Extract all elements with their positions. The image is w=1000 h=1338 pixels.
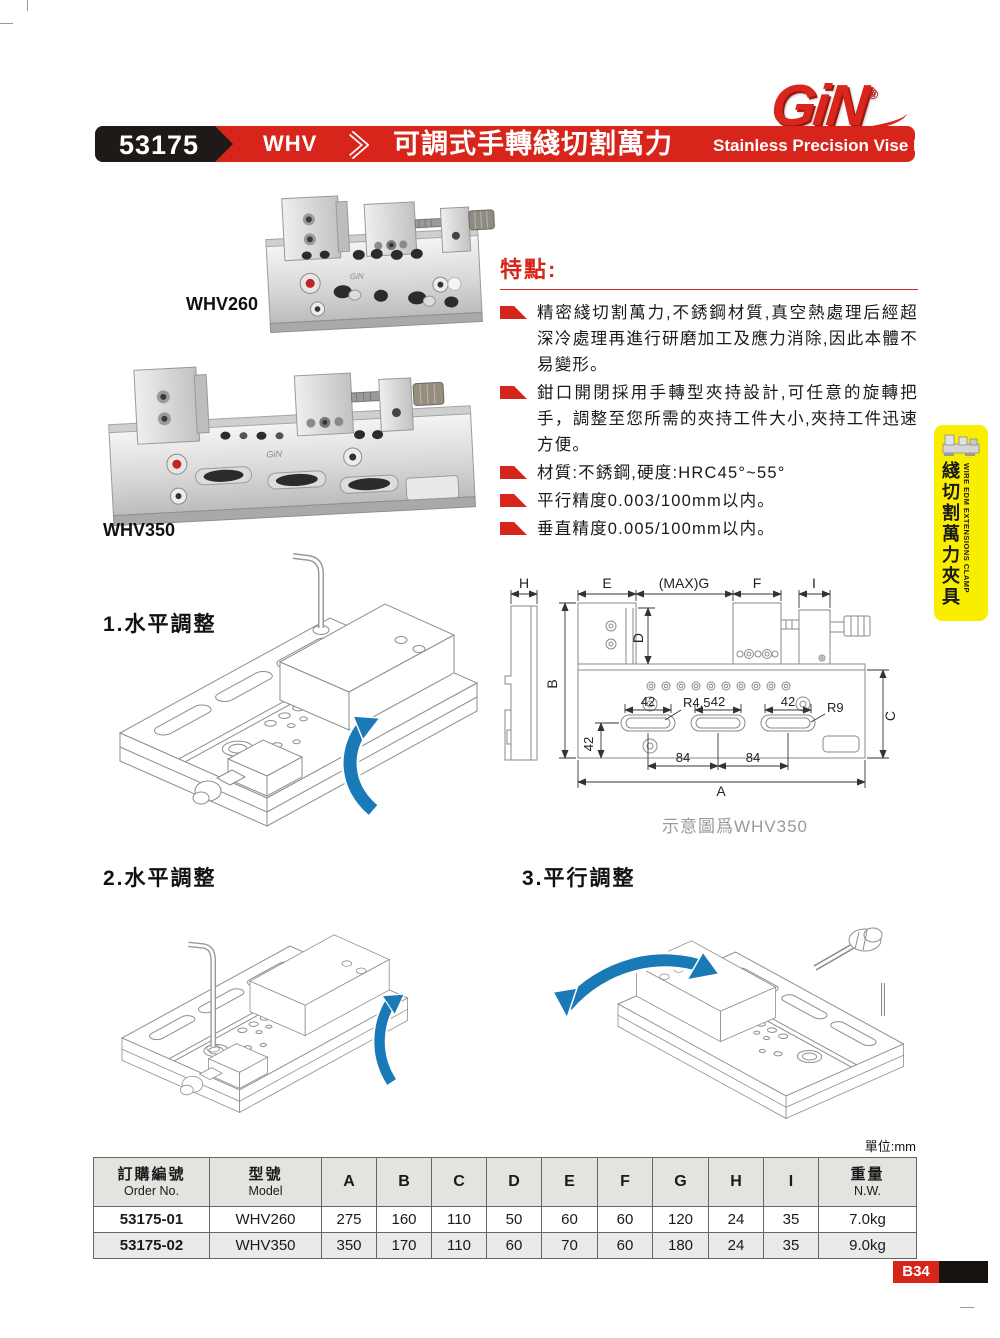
col-order-en: Order No. (94, 1184, 209, 1199)
dim-label-h: H (519, 575, 529, 591)
cell-d: 50 (487, 1207, 542, 1233)
feature-item: 平行精度0.003/100mm以内。 (500, 488, 918, 514)
feature-text: 精密綫切割萬力,不銹鋼材質,真空熱處理后經超深冷處理再進行研磨加工及應力消除,因… (537, 300, 918, 378)
diagram-caption: 示意圖爲WHV350 (570, 812, 900, 837)
col-header-c: C (432, 1158, 487, 1207)
dim-label-r9: R9 (827, 700, 844, 715)
col-header-b: B (377, 1158, 432, 1207)
cell-weight: 7.0kg (819, 1207, 917, 1233)
page-subtitle: Stainless Precision Vise For EDM (713, 126, 983, 166)
table-row: 53175-01 WHV260 275 160 110 50 60 60 120… (94, 1207, 917, 1233)
feature-bullet-icon (500, 306, 527, 319)
dim-label-42a: 42 (641, 694, 655, 709)
crop-mark (27, 0, 28, 11)
dim-label-a: A (716, 783, 726, 799)
cell-weight: 9.0kg (819, 1233, 917, 1259)
dim-label-i: I (812, 575, 816, 591)
cell-order: 53175-01 (94, 1207, 210, 1233)
feature-item: 垂直精度0.005/100mm以内。 (500, 516, 918, 542)
dim-label-f: F (753, 575, 762, 591)
dim-label-42c: 42 (781, 694, 795, 709)
table-row: 53175-02 WHV350 350 170 110 60 70 60 180… (94, 1233, 917, 1259)
dim-label-42b: 42 (711, 694, 725, 709)
feature-item: 精密綫切割萬力,不銹鋼材質,真空熱處理后經超深冷處理再進行研磨加工及應力消除,因… (500, 300, 918, 378)
cell-order: 53175-02 (94, 1233, 210, 1259)
features-divider (500, 289, 918, 290)
col-header-g: G (653, 1158, 709, 1207)
step3-illustration (515, 888, 950, 1133)
col-weight-zh: 重量 (819, 1165, 916, 1184)
cell-c: 110 (432, 1207, 487, 1233)
product-photo-whv350: GiN (98, 352, 493, 538)
col-header-h: H (709, 1158, 764, 1207)
product-photo-whv260: GiN (250, 188, 500, 353)
feature-text: 垂直精度0.005/100mm以内。 (537, 516, 775, 542)
dim-label-84b: 84 (746, 750, 760, 765)
dim-label-b: B (544, 679, 560, 688)
catalog-page: GiN® 53175 WHV 可調式手轉綫切割萬力 Stainless Prec… (0, 0, 1000, 1338)
dim-label-maxg: (MAX)G (659, 575, 710, 591)
dim-label-d: D (630, 633, 646, 643)
page-number-bar (939, 1261, 988, 1283)
cell-b: 170 (377, 1233, 432, 1259)
side-tab-label-zh: 綫切割萬力夾具 (937, 461, 963, 617)
col-header-order: 訂購編號 Order No. (94, 1158, 210, 1207)
col-header-f: F (598, 1158, 653, 1207)
feature-bullet-icon (500, 466, 527, 479)
col-model-en: Model (210, 1184, 321, 1199)
cell-a: 275 (322, 1207, 377, 1233)
cell-d: 60 (487, 1233, 542, 1259)
dim-label-r45: R4.5 (683, 695, 710, 710)
col-header-d: D (487, 1158, 542, 1207)
etched-brand-mark: GiN (350, 272, 364, 282)
cell-g: 120 (653, 1207, 709, 1233)
page-title: 可調式手轉綫切割萬力 (393, 126, 673, 163)
cell-model: WHV260 (210, 1207, 322, 1233)
cell-c: 110 (432, 1233, 487, 1259)
page-number-badge: B34 (893, 1261, 939, 1283)
side-tab-label-en: WIRE EDM EXTENSIONS CLAMP (962, 463, 971, 619)
col-model-zh: 型號 (210, 1165, 321, 1184)
cell-b: 160 (377, 1207, 432, 1233)
col-header-weight: 重量 N.W. (819, 1158, 917, 1207)
col-header-e: E (542, 1158, 598, 1207)
dimension-drawing: H E (MAX)G F I B D C A 42 42 42 42 R4.5 … (493, 560, 935, 810)
col-order-zh: 訂購編號 (94, 1165, 209, 1184)
header-bar: 53175 WHV 可調式手轉綫切割萬力 Stainless Precision… (95, 126, 915, 162)
crop-mark (0, 23, 13, 24)
col-header-i: I (764, 1158, 819, 1207)
feature-bullet-icon (500, 386, 527, 399)
table-header-row: 訂購編號 Order No. 型號 Model A B C D E F G H … (94, 1158, 917, 1207)
col-weight-en: N.W. (819, 1184, 916, 1199)
unit-note: 單位:mm (760, 1136, 916, 1155)
cell-f: 60 (598, 1233, 653, 1259)
cell-i: 35 (764, 1207, 819, 1233)
product-code-box: 53175 (95, 126, 215, 162)
cell-i: 35 (764, 1233, 819, 1259)
cell-h: 24 (709, 1207, 764, 1233)
feature-text: 材質:不銹鋼,硬度:HRC45°~55° (537, 460, 786, 486)
product-label-whv260: WHV260 (186, 294, 258, 315)
series-code: WHV (263, 126, 317, 162)
col-header-model: 型號 Model (210, 1158, 322, 1207)
dim-label-42v: 42 (581, 737, 596, 751)
side-tab-thumbnail (941, 432, 981, 458)
product-label-whv350: WHV350 (103, 520, 175, 541)
chevron-icon (347, 131, 369, 159)
feature-text: 鉗口開閉採用手轉型夾持設計,可任意的旋轉把手，調整至您所需的夾持工件大小,夾持工… (537, 380, 918, 458)
spec-table: 訂購編號 Order No. 型號 Model A B C D E F G H … (93, 1157, 917, 1259)
dim-label-c: C (882, 711, 898, 721)
cell-a: 350 (322, 1233, 377, 1259)
cell-e: 70 (542, 1233, 598, 1259)
crop-mark (960, 1307, 974, 1308)
features-section: 特點: 精密綫切割萬力,不銹鋼材質,真空熱處理后經超深冷處理再進行研磨加工及應力… (500, 252, 918, 544)
dim-label-e: E (602, 575, 611, 591)
feature-bullet-icon (500, 494, 527, 507)
registered-mark: ® (866, 85, 877, 100)
feature-bullet-icon (500, 522, 527, 535)
dim-label-84a: 84 (676, 750, 690, 765)
cell-model: WHV350 (210, 1233, 322, 1259)
cell-h: 24 (709, 1233, 764, 1259)
cell-e: 60 (542, 1207, 598, 1233)
etched-brand-mark: GiN (266, 449, 283, 460)
features-heading: 特點: (500, 252, 918, 284)
side-tab: 綫切割萬力夾具 WIRE EDM EXTENSIONS CLAMP (934, 425, 988, 621)
step2-illustration (92, 888, 507, 1133)
feature-item: 鉗口開閉採用手轉型夾持設計,可任意的旋轉把手，調整至您所需的夾持工件大小,夾持工… (500, 380, 918, 458)
step1-illustration (105, 548, 485, 848)
product-code: 53175 (103, 127, 215, 163)
feature-text: 平行精度0.003/100mm以内。 (537, 488, 775, 514)
cell-f: 60 (598, 1207, 653, 1233)
cell-g: 180 (653, 1233, 709, 1259)
feature-item: 材質:不銹鋼,硬度:HRC45°~55° (500, 460, 918, 486)
col-header-a: A (322, 1158, 377, 1207)
